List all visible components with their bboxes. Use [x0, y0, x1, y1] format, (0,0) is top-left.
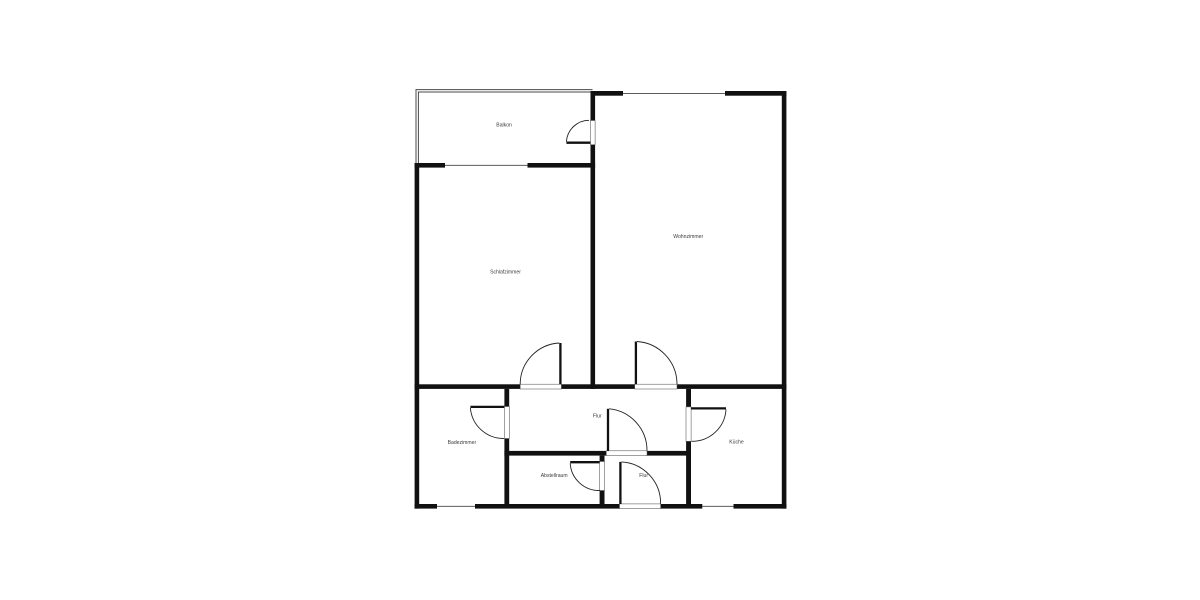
svg-text:Abstellraum: Abstellraum: [541, 473, 568, 479]
svg-text:Schlafzimmer: Schlafzimmer: [490, 269, 521, 275]
svg-text:Badezimmer: Badezimmer: [448, 440, 477, 446]
svg-text:Balkon: Balkon: [496, 123, 512, 129]
svg-text:Küche: Küche: [729, 440, 744, 446]
svg-text:Flur: Flur: [593, 413, 602, 419]
svg-text:Flur: Flur: [639, 473, 648, 479]
svg-text:Wohnzimmer: Wohnzimmer: [673, 234, 703, 240]
